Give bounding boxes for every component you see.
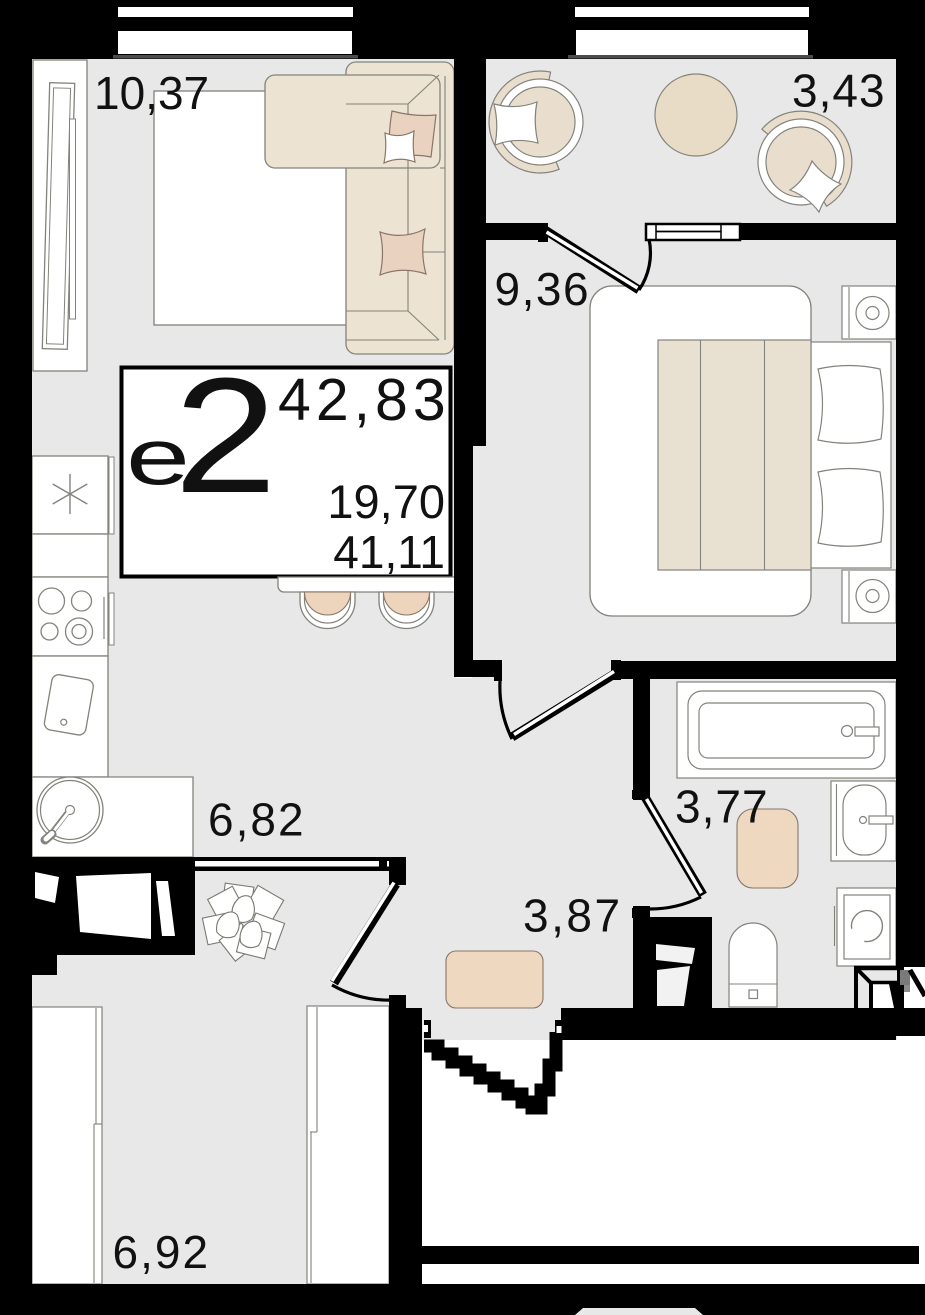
- svg-text:9,36: 9,36: [495, 263, 591, 315]
- svg-text:10,37: 10,37: [94, 67, 209, 119]
- svg-text:41,11: 41,11: [333, 526, 445, 578]
- svg-text:2: 2: [174, 344, 277, 527]
- svg-text:19,70: 19,70: [327, 475, 445, 528]
- svg-text:42,83: 42,83: [278, 367, 451, 433]
- svg-text:6,82: 6,82: [208, 794, 306, 846]
- svg-text:6,92: 6,92: [113, 1226, 211, 1278]
- svg-text:3,43: 3,43: [792, 65, 886, 117]
- svg-text:3,87: 3,87: [523, 890, 623, 942]
- svg-text:3,77: 3,77: [675, 781, 769, 833]
